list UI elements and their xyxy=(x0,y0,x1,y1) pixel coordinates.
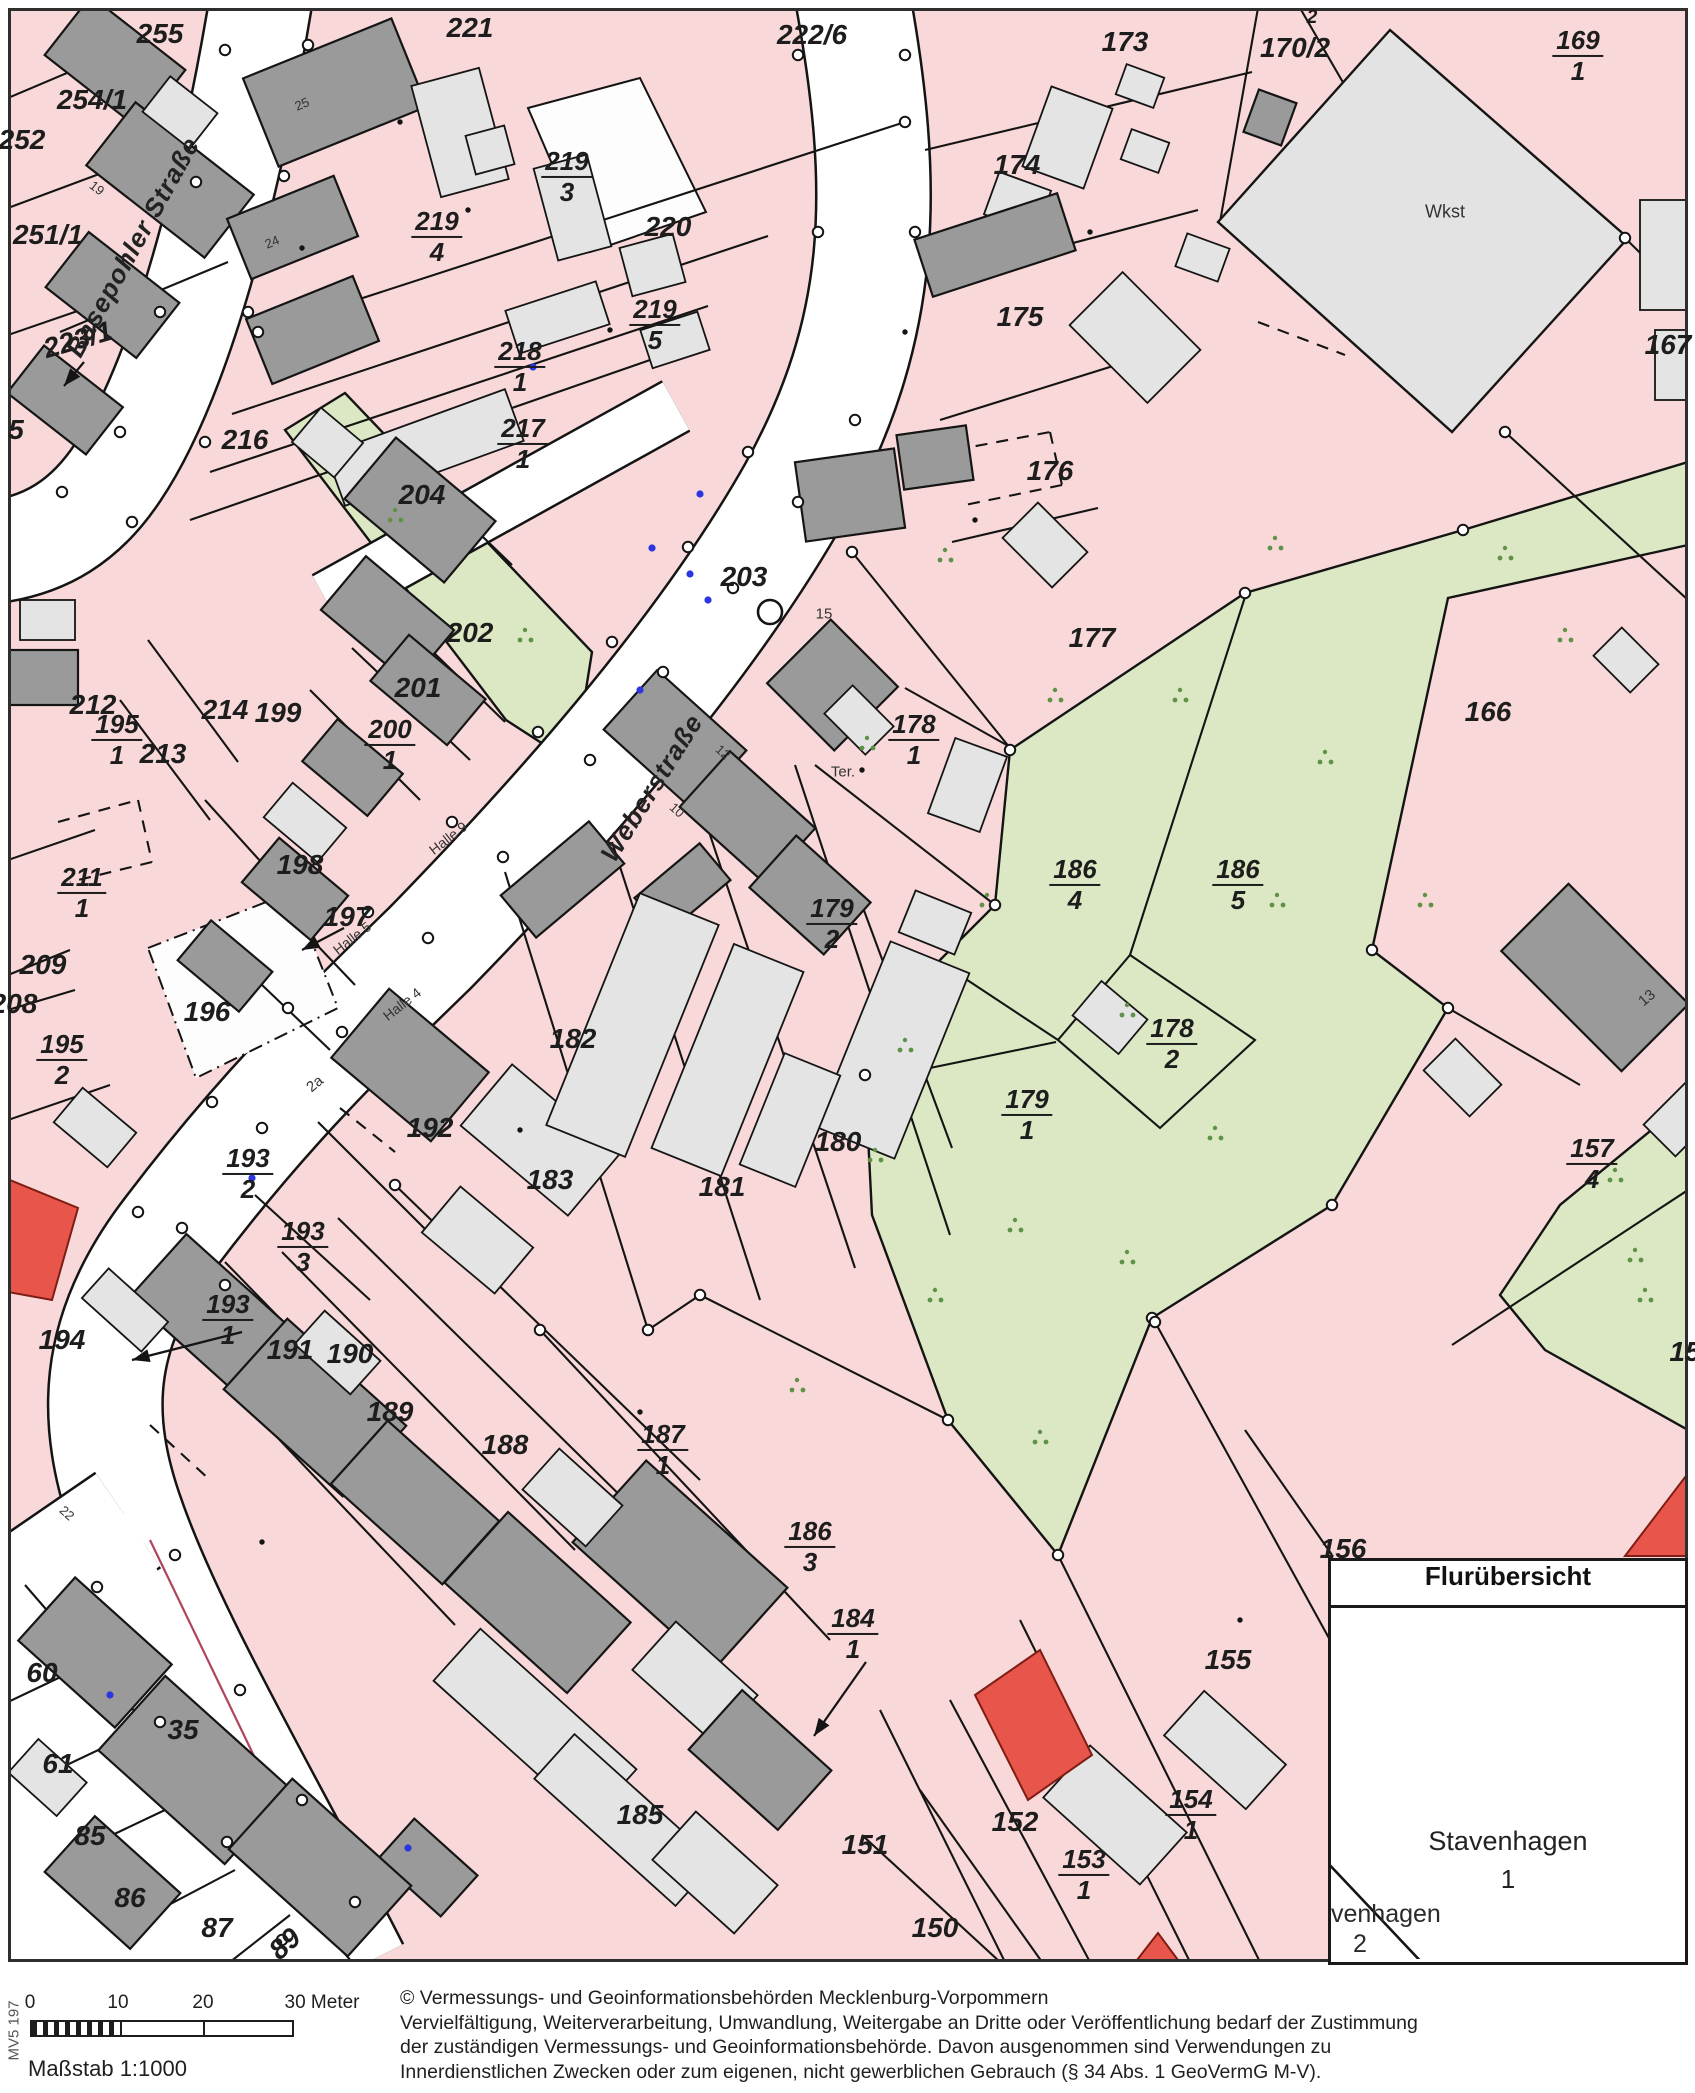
copyright-line-4: Innerdienstlichen Zwecken oder zum eigen… xyxy=(400,2060,1670,2085)
copyright-line-3: der zuständigen Vermessungs- und Geoinfo… xyxy=(400,2035,1670,2060)
cadastral-map-page: 255254/1252251/15223/1216221222/62202042… xyxy=(0,0,1695,2093)
map-scale-text: Maßstab 1:1000 xyxy=(28,2056,187,2082)
flur-overview-inset: Flurübersicht Stavenhagen 1 venhagen 2 xyxy=(1328,1558,1688,1965)
scale-bar-tick xyxy=(203,2022,205,2035)
copyright-line-2: Vervielfältigung, Weiterverarbeitung, Um… xyxy=(400,2011,1670,2036)
scale-bar xyxy=(30,2020,294,2037)
inset-flur-number: 1 xyxy=(1331,1864,1685,1895)
scale-tick-10: 10 xyxy=(107,1992,128,2014)
scale-tick-30: 30 Meter xyxy=(285,1992,360,2014)
copyright-line-1: © Vermessungs- und Geoinformationsbehörd… xyxy=(400,1986,1670,2011)
street-circle-symbol xyxy=(758,600,782,624)
inset-clipped-place-label: venhagen xyxy=(1331,1900,1441,1929)
scale-tick-0: 0 xyxy=(25,1992,36,2014)
copyright-block: © Vermessungs- und Geoinformationsbehörd… xyxy=(400,1986,1670,2084)
scale-bar-hatch xyxy=(32,2022,122,2035)
inset-title: Flurübersicht xyxy=(1331,1561,1685,1608)
inset-place-label: Stavenhagen xyxy=(1331,1826,1685,1857)
inset-clipped-flur-number: 2 xyxy=(1353,1930,1367,1959)
map-sheet-code: MV5 197 xyxy=(6,2000,23,2060)
inset-body: Stavenhagen 1 venhagen 2 xyxy=(1331,1608,1685,1959)
scale-tick-20: 20 xyxy=(192,1992,213,2014)
